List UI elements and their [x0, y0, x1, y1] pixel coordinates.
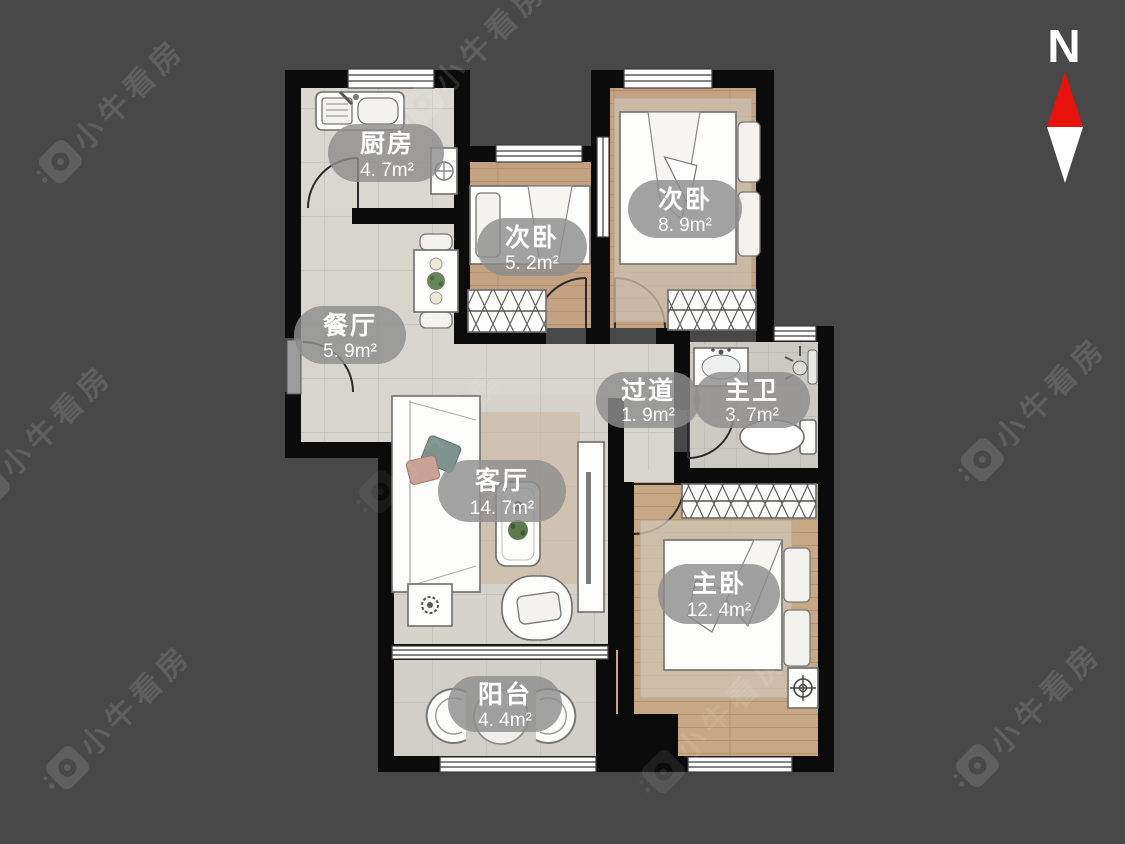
- compass-needle-north: [1047, 72, 1083, 127]
- svg-text:小牛看房: 小牛看房: [429, 0, 554, 99]
- bathroom-window: [774, 326, 816, 341]
- label-bedroom-small: 次卧 5. 2m²: [477, 218, 587, 276]
- label-hallway: 过道 1. 9m²: [596, 372, 700, 428]
- watermark: 小牛看房: [952, 329, 1114, 491]
- svg-text:小牛看房: 小牛看房: [67, 32, 192, 157]
- bedroom-small-window: [496, 145, 582, 162]
- watermark: 小牛看房: [392, 0, 554, 135]
- master-bedroom-area: 12. 4m²: [687, 600, 751, 621]
- svg-text:小牛看房: 小牛看房: [989, 330, 1114, 455]
- watermark: 小牛看房: [30, 31, 192, 193]
- label-dining: 餐厅 5. 9m²: [294, 306, 406, 364]
- bedroom-second-name: 次卧: [658, 186, 712, 214]
- bedroom-small-area: 5. 2m²: [505, 253, 559, 274]
- label-bedroom-second: 次卧 8. 9m²: [628, 180, 742, 238]
- watermark: 小牛看房: [37, 637, 199, 799]
- bedroom-small-name: 次卧: [505, 224, 559, 252]
- living-armchair: [502, 576, 572, 640]
- svg-text:小牛看房: 小牛看房: [0, 358, 120, 483]
- balcony-area: 4. 4m²: [478, 710, 532, 731]
- bedroom-second-area: 8. 9m²: [658, 215, 712, 236]
- living-area: 14. 7m²: [470, 498, 534, 519]
- compass: N: [1047, 20, 1083, 183]
- watermark: 小牛看房: [0, 357, 120, 519]
- balcony-name: 阳台: [478, 680, 532, 709]
- watermark: 小牛看房: [947, 635, 1109, 797]
- balcony-door-window: [392, 646, 608, 659]
- master-bath-area: 3. 7m²: [725, 405, 779, 426]
- label-kitchen: 厨房 4. 7m²: [328, 124, 444, 182]
- niche-window: [597, 137, 609, 237]
- floorplan-svg: 厨房 4. 7m² 次卧 5. 2m² 次卧 8. 9m² 餐厅 5. 9m² …: [0, 0, 1125, 844]
- compass-needle-south: [1047, 127, 1083, 183]
- living-tv-console: [578, 442, 604, 612]
- living-name: 客厅: [475, 466, 529, 495]
- master-nightstand: [788, 668, 818, 708]
- master-bath-name: 主卫: [725, 377, 779, 405]
- svg-text:小牛看房: 小牛看房: [74, 638, 199, 763]
- hallway-name: 过道: [621, 376, 675, 405]
- bedroom-small-wardrobe: [468, 290, 546, 332]
- dining-name: 餐厅: [323, 312, 377, 340]
- master-wardrobe: [682, 484, 816, 518]
- hallway-area: 1. 9m²: [621, 405, 675, 426]
- compass-n-label: N: [1047, 20, 1080, 72]
- floorplan-screenshot: 厨房 4. 7m² 次卧 5. 2m² 次卧 8. 9m² 餐厅 5. 9m² …: [0, 0, 1125, 844]
- master-window: [688, 757, 792, 772]
- living-side-table: [408, 584, 452, 626]
- kitchen-area: 4. 7m²: [360, 160, 414, 181]
- label-balcony: 阳台 4. 4m²: [448, 676, 562, 732]
- bedroom-second-wardrobe: [668, 290, 756, 330]
- kitchen-name: 厨房: [360, 129, 414, 158]
- label-master-bath: 主卫 3. 7m²: [694, 372, 810, 428]
- master-bedroom-name: 主卧: [692, 570, 746, 598]
- dining-area: 5. 9m²: [323, 341, 377, 362]
- bedroom-second-window: [624, 69, 712, 88]
- svg-text:小牛看房: 小牛看房: [984, 636, 1109, 761]
- balcony-window: [440, 757, 596, 772]
- label-living: 客厅 14. 7m²: [438, 460, 566, 522]
- label-master-bedroom: 主卧 12. 4m²: [658, 564, 780, 624]
